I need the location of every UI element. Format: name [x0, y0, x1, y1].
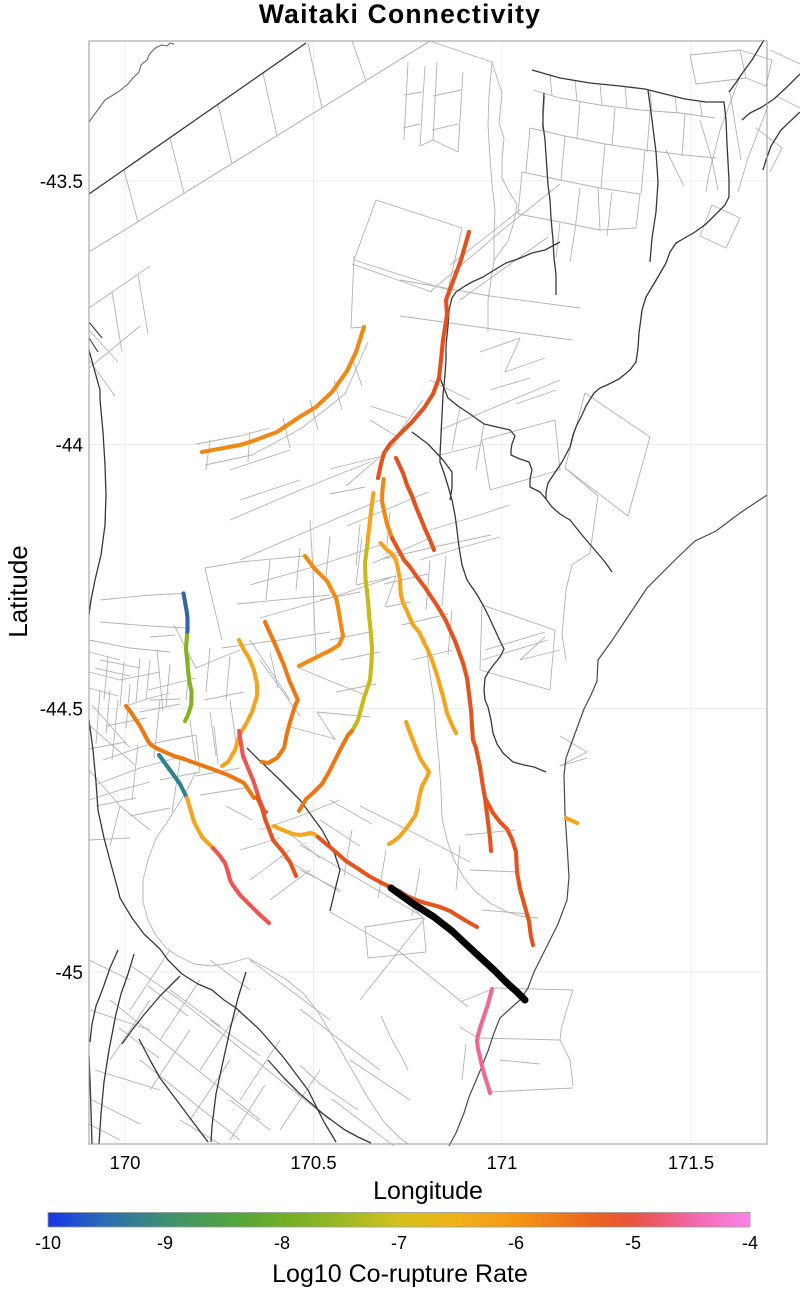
- svg-text:Waitaki Connectivity: Waitaki Connectivity: [259, 0, 541, 29]
- svg-text:-7: -7: [391, 1233, 407, 1253]
- svg-text:171.5: 171.5: [668, 1152, 714, 1173]
- svg-text:Latitude: Latitude: [3, 545, 33, 638]
- svg-text:-5: -5: [625, 1233, 641, 1253]
- svg-text:-43.5: -43.5: [40, 172, 83, 193]
- svg-text:-9: -9: [157, 1233, 173, 1253]
- svg-text:-45: -45: [56, 963, 83, 984]
- svg-text:170: 170: [110, 1152, 141, 1173]
- svg-text:-44.5: -44.5: [40, 700, 83, 721]
- svg-text:Longitude: Longitude: [373, 1177, 483, 1205]
- svg-text:171: 171: [487, 1152, 518, 1173]
- svg-text:170.5: 170.5: [290, 1152, 336, 1173]
- svg-text:-6: -6: [508, 1233, 524, 1253]
- svg-text:Log10 Co-rupture Rate: Log10 Co-rupture Rate: [272, 1260, 528, 1288]
- svg-text:-8: -8: [274, 1233, 290, 1253]
- svg-text:-4: -4: [742, 1233, 758, 1253]
- svg-text:-10: -10: [35, 1233, 61, 1253]
- svg-text:-44: -44: [56, 436, 84, 457]
